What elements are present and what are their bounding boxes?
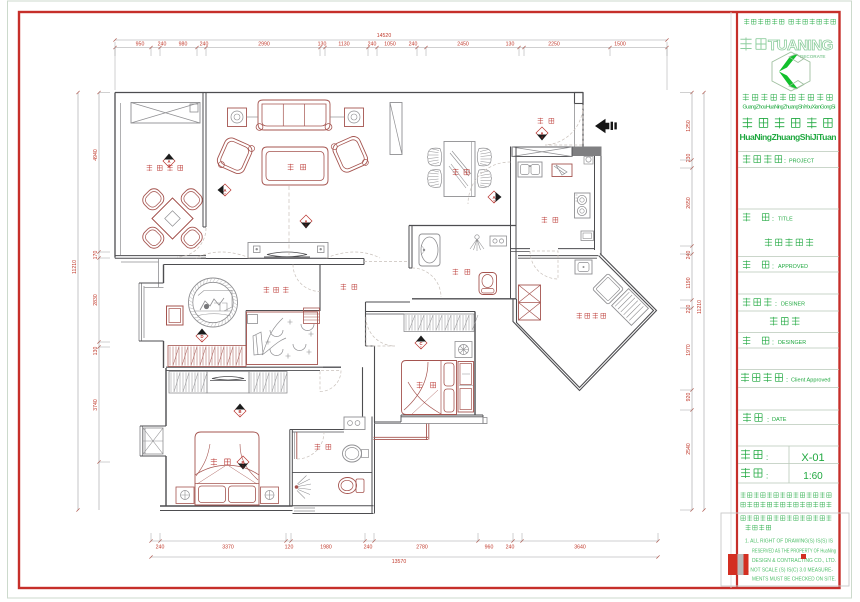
svg-text:1500: 1500 — [614, 42, 626, 48]
svg-text::: : — [786, 375, 788, 384]
svg-text:1:60: 1:60 — [803, 471, 823, 482]
svg-text:3370: 3370 — [222, 545, 234, 551]
svg-text:DESINER: DESINER — [781, 302, 805, 308]
svg-text:1050: 1050 — [384, 42, 396, 48]
svg-text:130: 130 — [93, 347, 99, 356]
svg-text::: : — [772, 340, 774, 347]
svg-text:1250: 1250 — [686, 120, 692, 132]
svg-text:1980: 1980 — [320, 545, 332, 551]
svg-text:4: 4 — [541, 136, 543, 140]
svg-text:240: 240 — [686, 251, 692, 260]
svg-text:240: 240 — [364, 545, 373, 551]
svg-text:11210: 11210 — [697, 300, 703, 314]
svg-text:DATE: DATE — [772, 417, 787, 423]
svg-text:2450: 2450 — [457, 42, 469, 48]
svg-text::: : — [775, 301, 777, 308]
svg-text:2990: 2990 — [258, 42, 270, 48]
svg-text:13570: 13570 — [392, 559, 407, 565]
svg-text:950: 950 — [136, 42, 145, 48]
svg-text:RESERVED AS THE PROPERTY OF Hu: RESERVED AS THE PROPERTY OF HuaNing — [752, 549, 836, 555]
svg-text:MENTS MUST BE CHECKED ON SITE.: MENTS MUST BE CHECKED ON SITE. — [752, 577, 836, 583]
svg-text:240: 240 — [158, 42, 167, 48]
svg-text:1130: 1130 — [338, 42, 349, 48]
svg-text:240: 240 — [200, 42, 209, 48]
svg-text:DESIGN & CONTRACTING CO., LTD.: DESIGN & CONTRACTING CO., LTD. — [752, 558, 836, 564]
svg-text:170: 170 — [93, 251, 99, 260]
svg-text:2650: 2650 — [686, 197, 692, 209]
svg-text:2. NOT SCALE (S) IS(C) 3.0 MEA: 2. NOT SCALE (S) IS(C) 3.0 MEASURE- — [745, 568, 833, 574]
svg-text:Client Approved: Client Approved — [791, 378, 831, 384]
svg-text:GuangZhouHuaNingZhuangShiYouXi: GuangZhouHuaNingZhuangShiYouXianGongSi — [743, 105, 836, 111]
svg-text:APPROVED: APPROVED — [778, 264, 808, 270]
svg-text:920: 920 — [686, 393, 692, 402]
svg-text:240: 240 — [368, 42, 377, 48]
svg-text:1. ALL RIGHT OF DRAWING(S) IS(: 1. ALL RIGHT OF DRAWING(S) IS(S) IS — [745, 539, 833, 545]
svg-text:980: 980 — [179, 42, 188, 48]
svg-text::: : — [772, 216, 774, 223]
svg-text:130: 130 — [506, 42, 515, 48]
svg-text::: : — [766, 472, 768, 481]
svg-text:2540: 2540 — [686, 443, 692, 455]
svg-text:1: 1 — [242, 465, 244, 469]
svg-text::: : — [767, 415, 769, 424]
svg-text:DESINGER: DESINGER — [778, 340, 806, 346]
svg-text:2: 2 — [224, 193, 226, 197]
svg-text:4940: 4940 — [93, 149, 99, 161]
svg-text:1: 1 — [201, 339, 203, 343]
svg-text:14520: 14520 — [377, 33, 392, 39]
svg-text:2250: 2250 — [548, 42, 560, 48]
svg-text:960: 960 — [485, 545, 494, 551]
svg-text:2780: 2780 — [416, 545, 428, 551]
svg-text:120: 120 — [285, 545, 294, 551]
svg-text:3640: 3640 — [574, 545, 586, 551]
svg-text:11210: 11210 — [72, 260, 78, 274]
svg-text:240: 240 — [156, 545, 165, 551]
svg-text:3740: 3740 — [93, 399, 99, 411]
svg-text:TUANING: TUANING — [768, 37, 833, 54]
svg-text:1190: 1190 — [686, 277, 692, 288]
svg-text:240: 240 — [506, 545, 515, 551]
svg-text:240: 240 — [409, 42, 418, 48]
svg-text:TITLE: TITLE — [778, 217, 793, 223]
svg-text:1: 1 — [420, 346, 422, 350]
svg-text:X-01: X-01 — [801, 452, 824, 464]
svg-text:130: 130 — [318, 42, 327, 48]
svg-text:1970: 1970 — [686, 344, 692, 356]
svg-text:PROJECT: PROJECT — [789, 159, 815, 165]
svg-text:2830: 2830 — [93, 294, 99, 306]
svg-text::: : — [772, 264, 774, 271]
svg-text:220: 220 — [686, 305, 692, 314]
svg-text::: : — [766, 453, 768, 462]
svg-text:1: 1 — [305, 224, 307, 228]
svg-text:2: 2 — [239, 414, 241, 418]
svg-text::: : — [784, 158, 786, 165]
svg-text:3: 3 — [493, 200, 495, 204]
svg-text:HuaNingZhuangShiJiTuan: HuaNingZhuangShiJiTuan — [740, 132, 837, 142]
svg-text:230: 230 — [686, 154, 692, 163]
